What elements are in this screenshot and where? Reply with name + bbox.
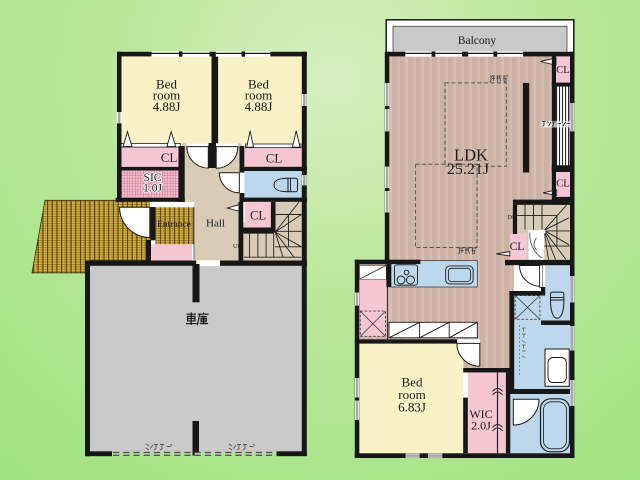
svg-text:CL: CL (266, 151, 283, 166)
svg-text:1.0J: 1.0J (143, 183, 162, 195)
svg-text:25.21J: 25.21J (447, 161, 489, 178)
svg-text:6.83J: 6.83J (398, 400, 426, 415)
svg-text:UP: UP (233, 243, 241, 250)
svg-text:4.88J: 4.88J (245, 99, 273, 114)
svg-text:Entrance: Entrance (157, 220, 191, 230)
svg-text:CL: CL (556, 179, 569, 190)
svg-text:CL: CL (161, 150, 178, 165)
svg-text:Balcony: Balcony (458, 35, 497, 47)
svg-text:CL: CL (250, 209, 266, 223)
svg-text:4.88J: 4.88J (153, 99, 181, 114)
svg-text:Hall: Hall (206, 218, 225, 230)
svg-text:CL: CL (556, 65, 569, 76)
svg-text:CL: CL (510, 241, 525, 253)
svg-text:DN: DN (508, 214, 517, 221)
svg-text:2.0J: 2.0J (471, 419, 491, 433)
